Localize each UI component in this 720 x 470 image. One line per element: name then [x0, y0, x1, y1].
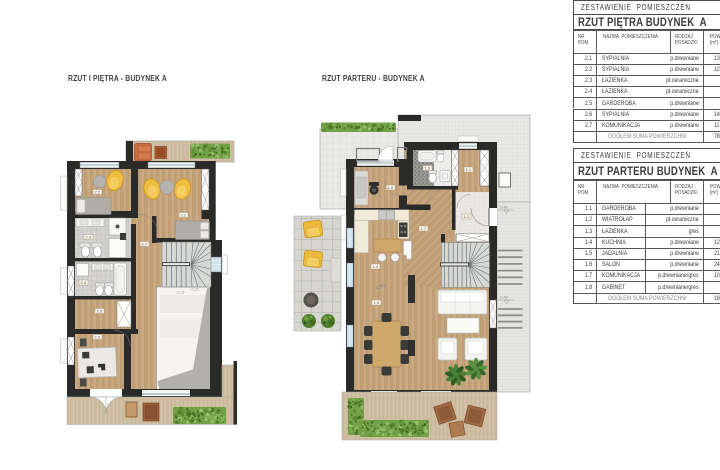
svg-text:1.4: 1.4 [373, 264, 379, 269]
svg-text:1.2: 1.2 [464, 214, 470, 219]
svg-text:1.8: 1.8 [388, 185, 394, 190]
svg-text:1.5: 1.5 [374, 300, 380, 305]
svg-text:2,48: 2,48 [500, 205, 509, 210]
svg-text:1.1: 1.1 [466, 167, 472, 172]
svg-text:2.1: 2.1 [181, 213, 187, 218]
svg-text:1.7: 1.7 [421, 226, 427, 231]
svg-text:15,35: 15,35 [176, 291, 185, 295]
svg-text:2.2: 2.2 [95, 190, 101, 195]
svg-text:1.3: 1.3 [425, 166, 431, 171]
svg-text:2.7: 2.7 [142, 242, 148, 247]
svg-text:2.5: 2.5 [97, 309, 103, 314]
svg-text:2.3: 2.3 [86, 235, 92, 240]
svg-text:2.6: 2.6 [95, 335, 101, 340]
svg-text:2.4: 2.4 [81, 280, 87, 285]
svg-text:2,48: 2,48 [500, 295, 509, 300]
svg-text:15,35: 15,35 [190, 288, 199, 292]
